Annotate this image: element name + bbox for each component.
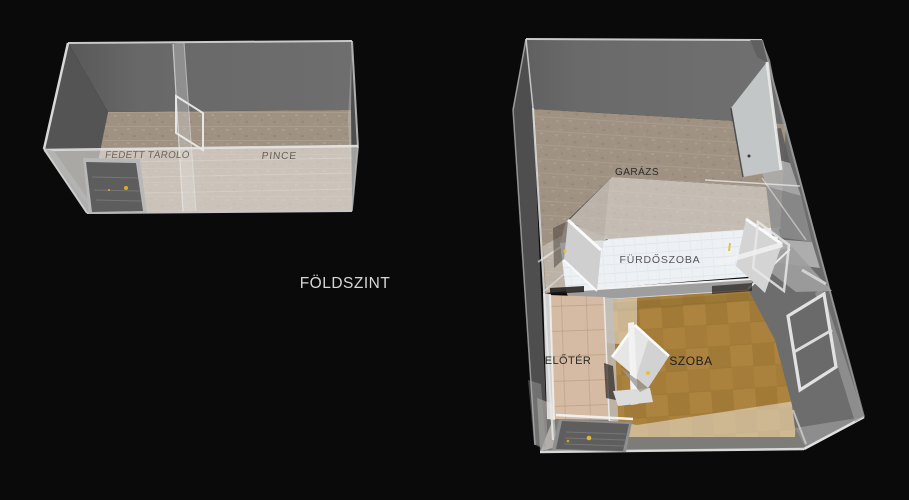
svg-text:GARÁZS: GARÁZS bbox=[615, 165, 659, 178]
svg-text:FÖLDSZINT: FÖLDSZINT bbox=[300, 274, 391, 292]
svg-text:SZOBA: SZOBA bbox=[669, 354, 712, 368]
svg-text:FÜRDŐSZOBA: FÜRDŐSZOBA bbox=[620, 252, 701, 266]
svg-text:PINCE: PINCE bbox=[261, 151, 297, 162]
svg-text:ELŐTÉR: ELŐTÉR bbox=[545, 353, 591, 367]
